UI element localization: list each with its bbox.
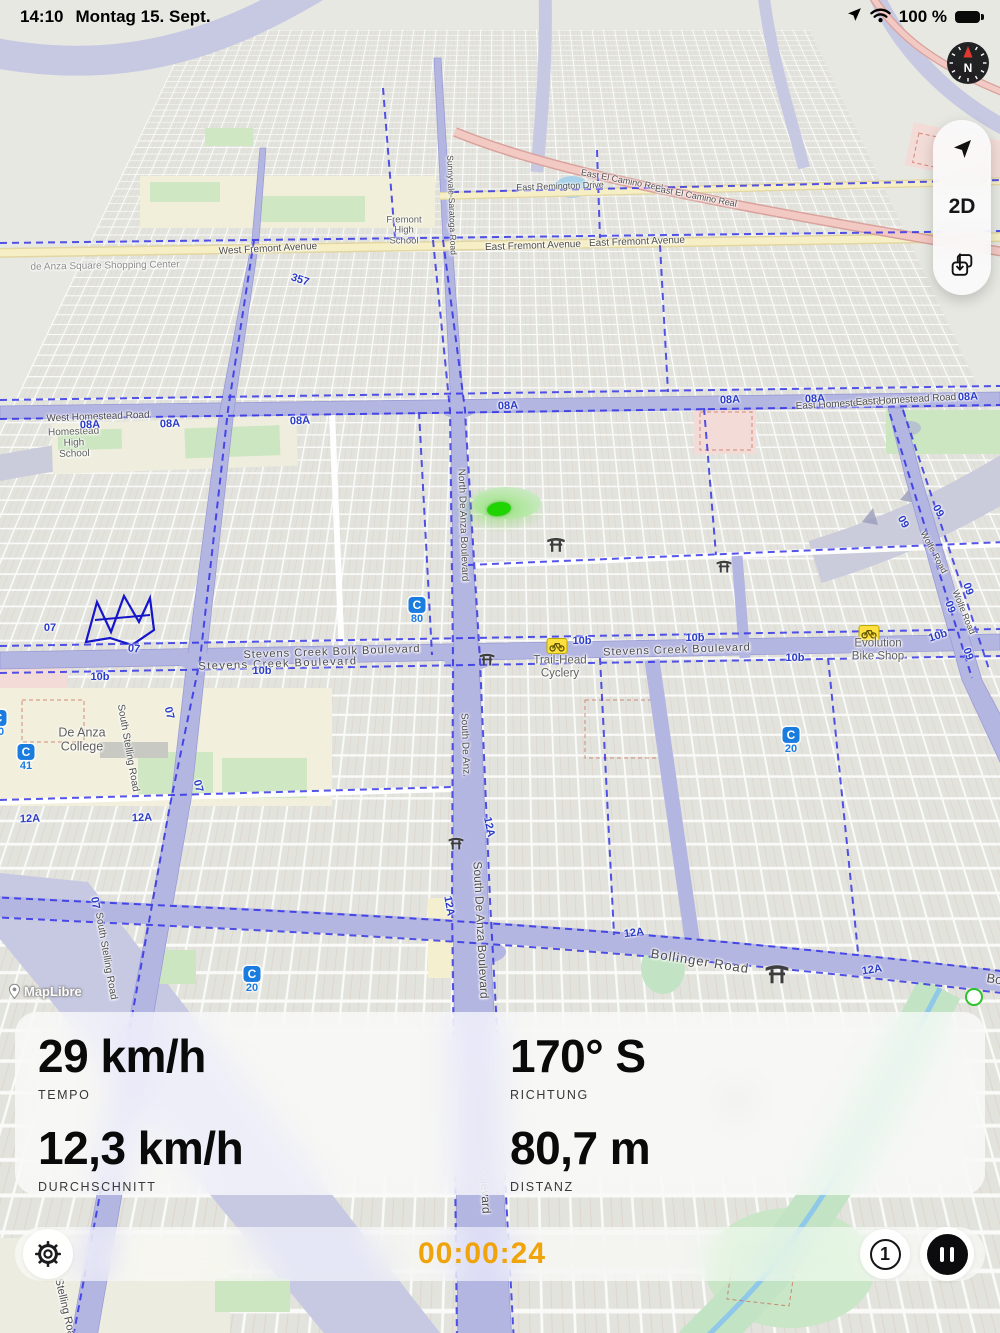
- bike-route-ref: 07: [88, 896, 102, 910]
- bike-route-ref: 08A: [80, 419, 101, 432]
- richtung-label: RICHTUNG: [510, 1088, 646, 1102]
- bike-shop-icon: [547, 638, 568, 654]
- map-mode-2d-button[interactable]: 2D: [933, 179, 991, 235]
- map-street-label: Wolfe Road: [951, 588, 978, 635]
- bike-route-shield: C20: [244, 966, 261, 994]
- bike-route-ref: 357: [289, 271, 310, 288]
- bike-route-ref: 10b: [686, 632, 705, 644]
- map-attribution-link[interactable]: MapLibre: [8, 983, 82, 1000]
- bike-route-ref: 09: [960, 646, 975, 662]
- map-area-label: EvolutionBike Shop: [852, 637, 904, 662]
- map-street-label: Stevens Creek Boulevard: [603, 641, 751, 658]
- stats-panel: 29 km/h TEMPO 170° S RICHTUNG 12,3 km/h …: [15, 1012, 985, 1195]
- status-bar: 14:10 Montag 15. Sept. 100 %: [0, 0, 1000, 34]
- map-street-label: Bollinger Road: [650, 946, 750, 976]
- status-date: Montag 15. Sept.: [75, 7, 210, 27]
- torii-gate-icon: [479, 651, 496, 670]
- bike-route-ref: 09: [960, 581, 975, 597]
- map-street-label: Sunnyvale-Saratoga Road: [445, 155, 458, 255]
- bike-route-ref: 08A: [160, 418, 181, 431]
- status-time: 14:10: [20, 7, 63, 27]
- bike-route-ref: 10b: [573, 635, 592, 647]
- bike-route-ref: 12A: [623, 926, 644, 940]
- app-screen: C41C80C20C20C20 de Anza Square Shopping …: [0, 0, 1000, 1333]
- map-street-label: de Anza Square Shopping Center: [30, 259, 179, 273]
- map-street-label: South De Anza Boulevard: [470, 861, 491, 999]
- attribution-text: MapLibre: [24, 984, 82, 999]
- map-area-label: De AnzaCollege: [58, 726, 105, 754]
- map-pin-icon: [8, 983, 21, 1000]
- torii-gate-icon: [448, 835, 465, 854]
- position-marker: [486, 500, 512, 517]
- map-street-label: South Stelling Road: [93, 912, 119, 1001]
- battery-percent: 100 %: [899, 7, 947, 27]
- distanz-value: 80,7 m: [510, 1125, 650, 1171]
- bike-route-ref: 12A: [441, 895, 456, 917]
- bike-shop-icon: [859, 625, 880, 641]
- map-street-label: Wolfe Road: [919, 529, 950, 575]
- bike-route-shield: C80: [409, 597, 426, 625]
- bottom-control-bar: 00:00:24 1: [15, 1227, 985, 1281]
- locate-arrow-icon: [950, 137, 974, 161]
- bike-route-ref: 08A: [958, 390, 979, 403]
- stat-tempo: 29 km/h TEMPO: [38, 1033, 206, 1102]
- map-mode-label: 2D: [949, 195, 976, 219]
- pause-button[interactable]: [920, 1227, 974, 1281]
- bike-route-ref: 09: [942, 599, 957, 615]
- torii-gate-icon: [764, 962, 790, 989]
- compass-north-label: N: [964, 61, 973, 75]
- gear-icon: [33, 1239, 63, 1269]
- map-street-label: East El Camino Real: [654, 183, 737, 209]
- bike-route-ref: 12A: [481, 816, 497, 838]
- position-marker-glow: [451, 485, 547, 533]
- bike-route-ref: 07: [44, 622, 56, 634]
- map-street-label: Stevens Creek Boulevard: [198, 655, 358, 673]
- bike-route-ref: 07: [162, 706, 177, 721]
- bike-route-ref: 12A: [861, 962, 883, 977]
- bike-route-shield: C20: [0, 710, 7, 738]
- compass-button[interactable]: N: [946, 41, 990, 85]
- bike-route-ref: 08A: [805, 392, 826, 405]
- richtung-value: 170° S: [510, 1033, 646, 1079]
- stat-durchschnitt: 12,3 km/h DURCHSCHNITT: [38, 1125, 243, 1194]
- bike-route-ref: 07: [127, 642, 140, 655]
- map-street-label: East El Camino Real: [580, 167, 663, 193]
- map-street-label: Stevens Creek Bolk Boulevard: [243, 643, 420, 661]
- bike-route-ref: 10b: [91, 671, 110, 683]
- pause-icon: [927, 1234, 968, 1275]
- tempo-value: 29 km/h: [38, 1033, 206, 1079]
- bike-route-ref: 09: [895, 514, 911, 530]
- durchschnitt-label: DURCHSCHNITT: [38, 1180, 243, 1194]
- durchschnitt-value: 12,3 km/h: [38, 1125, 243, 1171]
- map-street-label: North De Anza Boulevard: [456, 468, 471, 581]
- bike-route-ref: 10b: [253, 665, 272, 677]
- export-button[interactable]: [933, 238, 991, 294]
- map-street-label: West Fremont Avenue: [218, 241, 317, 257]
- map-street-label: West Homestead Road: [46, 410, 150, 425]
- map-street-label: East Fremont Avenue: [485, 239, 581, 253]
- map-area-label: FremontHighSchool: [386, 215, 421, 246]
- map-street-label: East Homestead Road: [855, 392, 956, 408]
- location-services-icon: [847, 7, 862, 27]
- map-area-label: Trail-HeadCyclery: [533, 654, 586, 679]
- distanz-label: DISTANZ: [510, 1180, 650, 1194]
- bike-route-ref: 09: [930, 503, 946, 519]
- map-area-label: HomesteadHighSchool: [48, 426, 100, 461]
- bike-route-ref: 10b: [927, 627, 949, 644]
- map-street-label: South De Anz.: [458, 713, 471, 777]
- lap-count: 1: [870, 1239, 901, 1270]
- torii-gate-icon: [716, 558, 733, 577]
- bike-route-ref: 07: [191, 779, 206, 794]
- wifi-icon: [870, 7, 891, 28]
- map-street-label: South Stelling Road: [115, 704, 141, 793]
- battery-icon: [955, 11, 980, 24]
- map-street-label: East Fremont Avenue: [589, 235, 685, 249]
- stat-distanz: 80,7 m DISTANZ: [510, 1125, 650, 1194]
- map-street-label: East Homestead Road: [795, 396, 896, 412]
- bike-route-shield: C20: [783, 727, 800, 755]
- stat-richtung: 170° S RICHTUNG: [510, 1033, 646, 1102]
- bike-route-ref: 08A: [720, 393, 741, 406]
- compass-icon: N: [946, 41, 990, 85]
- tempo-label: TEMPO: [38, 1088, 206, 1102]
- trip-timer: 00:00:24: [418, 1237, 546, 1271]
- bike-route-ref: 08A: [290, 415, 311, 428]
- bike-route-ref: 12A: [132, 812, 153, 825]
- green-poi-icon: [965, 988, 983, 1006]
- torii-gate-icon: [546, 535, 566, 557]
- bike-route-ref: 12A: [20, 813, 41, 826]
- settings-button[interactable]: [23, 1229, 73, 1279]
- bike-route-shield: C41: [18, 744, 35, 772]
- locate-me-button[interactable]: [933, 121, 991, 177]
- map-button-stack: 2D: [933, 120, 991, 295]
- export-icon: [949, 252, 976, 279]
- lap-counter-button[interactable]: 1: [860, 1229, 910, 1279]
- bike-route-ref: 08A: [498, 400, 519, 413]
- map-street-label: East Remington Drive: [516, 179, 604, 192]
- map-street-label: Bol: [986, 970, 1000, 988]
- bike-route-ref: 10b: [786, 652, 805, 664]
